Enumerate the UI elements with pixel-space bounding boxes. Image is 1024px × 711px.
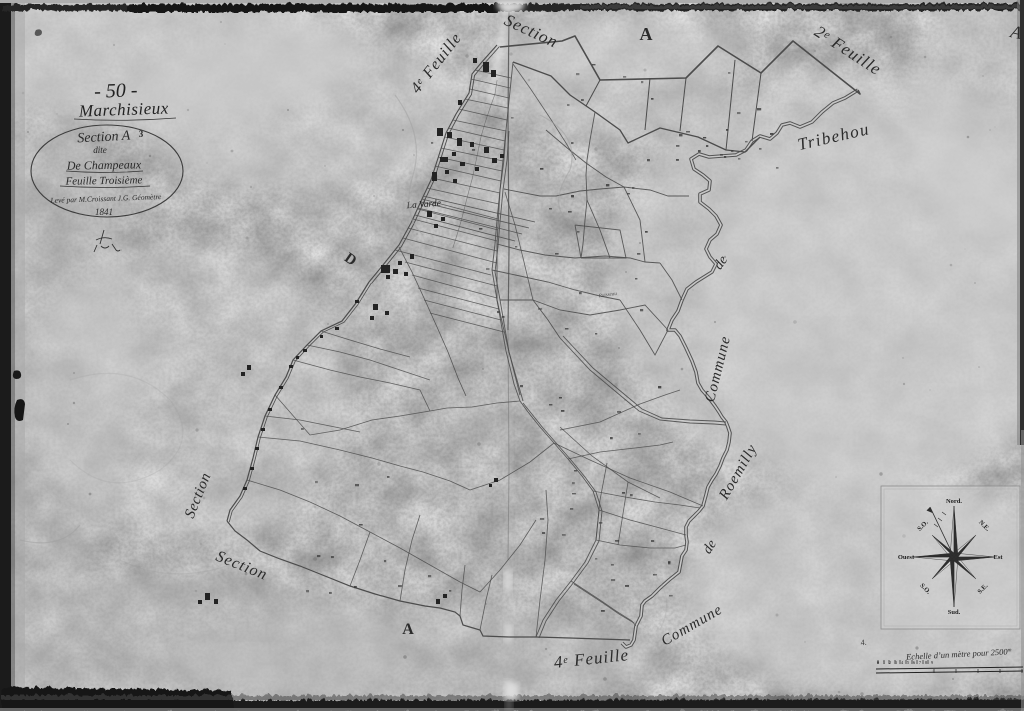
svg-text:1841: 1841 xyxy=(95,207,113,217)
svg-text:Ouest: Ouest xyxy=(898,554,915,561)
svg-text:2: 2 xyxy=(889,660,891,665)
svg-text:Feuille Troisième: Feuille Troisième xyxy=(64,174,142,187)
svg-text:1: 1 xyxy=(883,660,885,665)
svg-text:Est: Est xyxy=(993,554,1003,561)
svg-text:Section A: Section A xyxy=(77,129,131,147)
svg-text:Sud.: Sud. xyxy=(948,609,961,616)
svg-text:A: A xyxy=(640,24,653,44)
svg-text:dite: dite xyxy=(93,145,107,155)
svg-text:Marchisieux: Marchisieux xyxy=(78,98,169,120)
svg-text:De Champeaux: De Champeaux xyxy=(66,157,142,172)
svg-text:3: 3 xyxy=(139,129,144,139)
svg-text:Nord.: Nord. xyxy=(946,498,962,505)
svg-text:A: A xyxy=(402,621,414,638)
